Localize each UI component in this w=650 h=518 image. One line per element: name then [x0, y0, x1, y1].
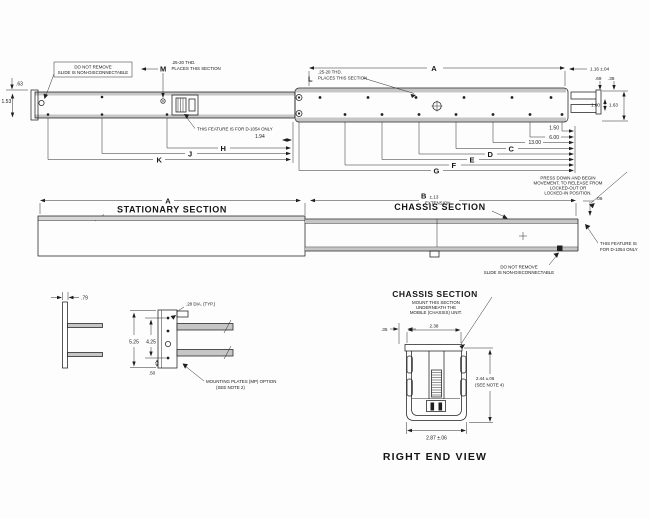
note-line: FOR D-1054 ONLY: [600, 247, 638, 252]
dim-rows-hjk: H J K 1.94: [48, 118, 293, 164]
outer-slide-member: [295, 88, 568, 122]
dim-1300: 13.00: [528, 140, 541, 146]
chassis-section-title: CHASSIS SECTION: [392, 289, 477, 299]
callout-m: .25-20 THD. M PLACES THIS SECTION: [142, 60, 221, 96]
right-end-view: CHASSIS SECTION MOUNT THIS SECTION UNDER…: [381, 289, 504, 463]
note-line: SLIDE IS NON-DISCONNECTABLE: [58, 70, 128, 75]
dim-238-label: 2.38: [430, 324, 439, 329]
stationary-section-body: [38, 216, 305, 256]
dim-38: .38: [608, 76, 615, 81]
note-line: LOCKED-IN POSITION.: [544, 191, 591, 196]
dim-600: 6.00: [549, 135, 559, 141]
dim-06-label: .06: [596, 196, 603, 201]
note-line: DO NOT REMOVE: [500, 265, 537, 270]
mounting-plate-end-view: .79: [51, 292, 103, 368]
latch-tab: [430, 251, 439, 257]
dim-244: 2.44 ±.06 (SEE NOTE 4): [464, 348, 504, 423]
dim-50-label: .50: [149, 371, 156, 376]
chassis-section-label: CHASSIS SECTION: [394, 202, 486, 212]
dim-153: 1.53: [2, 99, 12, 105]
channel-body: [405, 345, 467, 421]
mounting-plate-side-view: .28 DIA. (TYP.) 5.25 4.25: [129, 302, 276, 391]
dia-note: .28 DIA. (TYP.): [173, 302, 216, 315]
dim-150: 1.50: [549, 126, 559, 132]
side-elevation-view: A B ±.13 EXTENSION STATIONARY SECTION CH…: [38, 192, 638, 276]
top-plan-view: DO NOT REMOVE SLIDE IS NON-DISCONNECTABL…: [2, 60, 629, 208]
right-end-view-caption: RIGHT END VIEW: [383, 451, 487, 463]
note-line: MOUNTING PLATES (MP) OPTION: [206, 379, 276, 384]
dim-label-a: A: [431, 64, 437, 73]
places-label: PLACES THIS SECTION: [318, 76, 367, 81]
dim-35-label: .35: [381, 327, 388, 332]
dim-163: 1.63: [609, 103, 618, 108]
dim-194: 1.94: [255, 134, 265, 140]
plate-edge: [63, 302, 68, 368]
thread-spec: .25-20 THD.: [318, 70, 342, 75]
dim-letter-e: E: [470, 155, 475, 164]
note-line: THIS FEATURE IS: [600, 241, 637, 246]
dim-244-label: 2.44 ±.06: [476, 376, 495, 381]
dim-100: 1.00: [591, 103, 600, 108]
slide-assembly-drawing: DO NOT REMOVE SLIDE IS NON-DISCONNECTABL…: [0, 0, 650, 518]
dim-letter-k: K: [157, 155, 163, 164]
rail-stub: [177, 320, 233, 359]
stationary-section-label: STATIONARY SECTION: [117, 205, 227, 215]
dim-287: 2.87 ±.06: [407, 422, 467, 442]
dim-label-b: B: [421, 192, 427, 201]
dim-116: 1.16 ±.04: [590, 67, 610, 72]
spring-detail: [432, 370, 442, 397]
latch-feature: [172, 95, 198, 115]
dim-rows-right: 1.50 6.00 13.00 C D E F G: [299, 122, 575, 175]
press-down-note: PRESS DOWN AND BEGIN MOVEMENT, TO RELEAS…: [534, 172, 627, 203]
boss-hole: [432, 101, 443, 112]
thread-spec: .25-20 THD.: [172, 60, 196, 65]
subtitle-line: MOBILE (CHASSIS) UNIT.: [410, 310, 462, 315]
dim-letter-c: C: [509, 144, 515, 153]
dim-35: .35: [381, 323, 416, 344]
dim-525-label: 5.25: [129, 340, 139, 346]
dim-244-note: (SEE NOTE 4): [475, 383, 504, 388]
dim-79: .79: [51, 292, 88, 302]
dia-note-label: .28 DIA. (TYP.): [186, 302, 216, 307]
places-label: PLACES THIS SECTION: [172, 66, 221, 71]
dim-79-label: .79: [81, 296, 88, 302]
end-hole: [39, 100, 44, 105]
dim-letter-d: D: [488, 150, 494, 159]
chassis-section-body: [305, 219, 578, 257]
note-line: SLIDE IS NON-DISCONNECTABLE: [484, 270, 554, 275]
dim-letter-h: H: [221, 144, 226, 153]
latch-block: [427, 401, 446, 412]
dim-letter-j: J: [188, 149, 192, 158]
dim-69: .69: [595, 76, 602, 81]
dim-63: .63: [16, 82, 23, 88]
dim-425-label: 4.25: [146, 340, 156, 346]
feature-note-text: THIS FEATURE IS FOR D-1054 ONLY: [197, 127, 273, 132]
top-plate: [405, 345, 462, 352]
note-line: DO NOT REMOVE: [74, 65, 111, 70]
dim-238: 2.38: [407, 324, 461, 344]
note-line: (SEE NOTE 2): [216, 385, 245, 390]
left-end-dims: .63 1.53: [2, 78, 29, 116]
drawing-sheet: DO NOT REMOVE SLIDE IS NON-DISCONNECTABL…: [0, 0, 650, 518]
dimension-arrows-plate-end: [57, 296, 74, 299]
dim-b-tol: ±.13: [430, 195, 439, 200]
disconnect-stop: [557, 246, 563, 252]
do-not-remove-note-side: DO NOT REMOVE SLIDE IS NON-DISCONNECTABL…: [484, 255, 558, 276]
dim-letter-g: G: [434, 166, 440, 175]
mounting-note: MOUNTING PLATES (MP) OPTION (SEE NOTE 2): [185, 366, 277, 391]
callout-letter-m: M: [160, 65, 166, 74]
center-mark: [519, 232, 527, 240]
feature-note-side: THIS FEATURE IS FOR D-1054 ONLY: [587, 226, 638, 252]
dim-287-label: 2.87 ±.06: [426, 436, 447, 442]
dim-letter-f: F: [452, 161, 457, 170]
